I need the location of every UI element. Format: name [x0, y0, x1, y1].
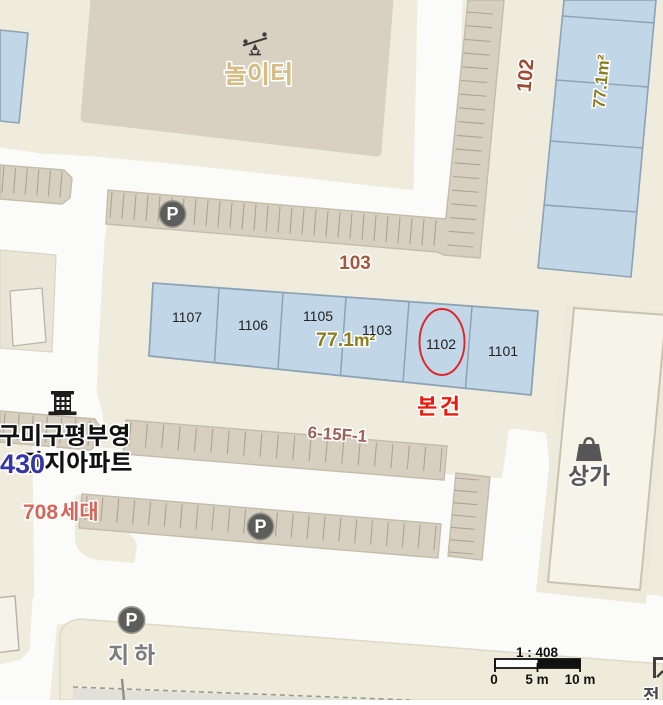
- svg-text:1101: 1101: [488, 343, 518, 359]
- svg-text:1102: 1102: [426, 336, 456, 352]
- svg-text:708: 708: [23, 501, 58, 524]
- svg-text:430: 430: [0, 449, 45, 479]
- svg-text:10 m: 10 m: [565, 672, 596, 687]
- svg-text:1 : 408: 1 : 408: [516, 645, 559, 660]
- svg-text:1105: 1105: [303, 308, 333, 324]
- svg-text:P: P: [125, 610, 137, 630]
- svg-text:102: 102: [513, 58, 538, 93]
- svg-text:P: P: [254, 517, 266, 537]
- svg-text:P: P: [166, 204, 178, 224]
- svg-text:0: 0: [490, 672, 498, 687]
- svg-text:1103: 1103: [362, 322, 392, 338]
- svg-text:103: 103: [339, 253, 371, 274]
- svg-text:5 m: 5 m: [525, 672, 548, 687]
- svg-text:1107: 1107: [172, 309, 202, 325]
- svg-text:1106: 1106: [238, 317, 268, 333]
